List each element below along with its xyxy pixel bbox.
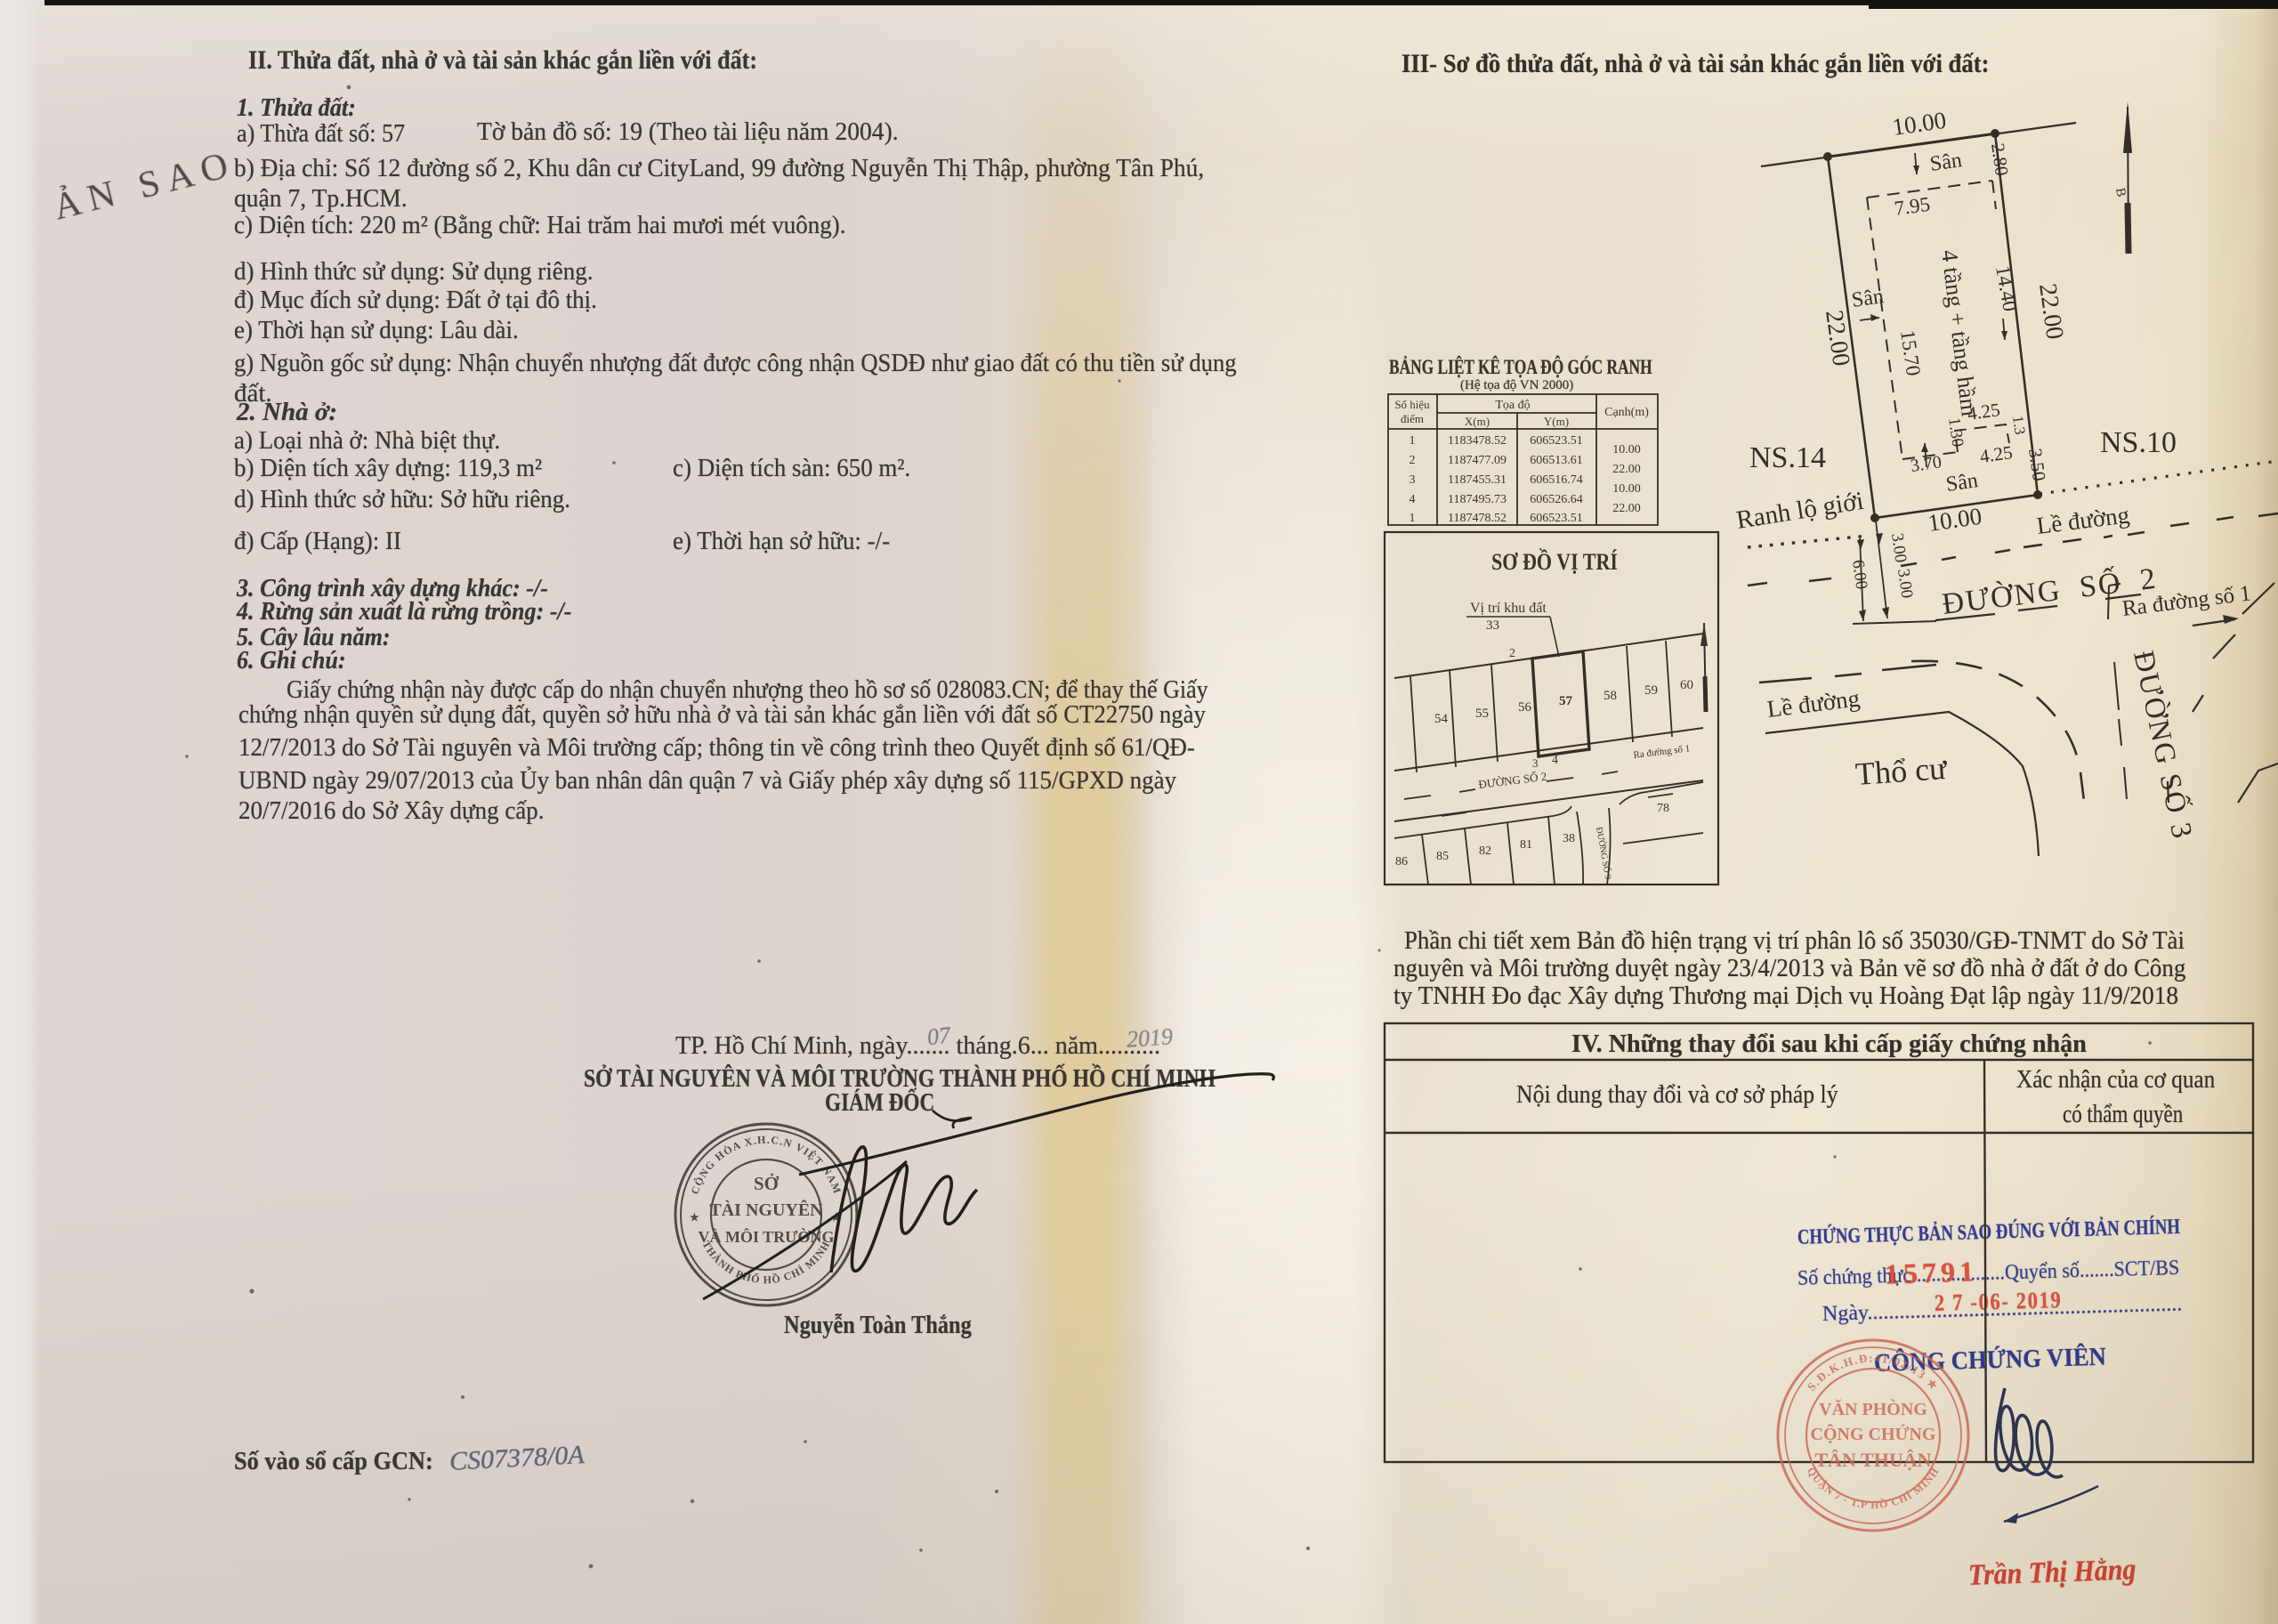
svg-text:CỘNG CHỨNG: CỘNG CHỨNG — [1811, 1423, 1936, 1444]
svg-text:58: 58 — [1603, 689, 1617, 703]
svg-text:1187495.73: 1187495.73 — [1448, 493, 1507, 506]
svg-text:59: 59 — [1644, 683, 1658, 698]
svg-text:NS.10: NS.10 — [2100, 426, 2177, 459]
svg-text:Thổ cư: Thổ cư — [1854, 750, 1950, 792]
svg-text:Sân: Sân — [1850, 285, 1885, 312]
svg-text:1187455.31: 1187455.31 — [1448, 473, 1507, 487]
svg-text:QUẬN 7 - T.P HỒ CHÍ MINH: QUẬN 7 - T.P HỒ CHÍ MINH — [1805, 1465, 1942, 1511]
svg-text:2: 2 — [1410, 454, 1416, 467]
svg-text:Tọa độ: Tọa độ — [1495, 399, 1530, 412]
svg-text:22.00: 22.00 — [2033, 282, 2068, 342]
svg-text:ĐƯỜNG SỐ 9: ĐƯỜNG SỐ 9 — [1594, 826, 1614, 880]
svg-text:4: 4 — [1410, 493, 1416, 506]
svg-text:1.30: 1.30 — [1944, 416, 1967, 448]
svg-text:NS.14: NS.14 — [1749, 441, 1826, 474]
svg-text:điểm: điểm — [1401, 412, 1424, 425]
svg-text:78: 78 — [1657, 802, 1669, 815]
svg-text:SƠ ĐỒ VỊ TRÍ: SƠ ĐỒ VỊ TRÍ — [1491, 549, 1618, 575]
svg-text:606523.51: 606523.51 — [1530, 434, 1583, 448]
svg-text:4.25: 4.25 — [1966, 399, 2001, 424]
svg-text:1: 1 — [1410, 512, 1416, 525]
svg-text:60: 60 — [1680, 678, 1693, 692]
svg-text:2: 2 — [1509, 647, 1515, 660]
svg-text:Lề đường: Lề đường — [2035, 501, 2131, 539]
svg-text:54: 54 — [1434, 712, 1449, 726]
svg-text:606526.64: 606526.64 — [1530, 493, 1583, 506]
svg-text:606516.74: 606516.74 — [1530, 473, 1583, 487]
svg-text:10.00: 10.00 — [1891, 107, 1948, 141]
svg-text:81: 81 — [1520, 838, 1532, 852]
svg-text:Ranh lộ giới: Ranh lộ giới — [1734, 487, 1865, 535]
svg-text:Vị trí khu đất: Vị trí khu đất — [1470, 601, 1547, 616]
svg-text:SỞ: SỞ — [754, 1173, 780, 1194]
svg-text:3.50: 3.50 — [2024, 447, 2050, 482]
svg-text:VĂN PHÒNG: VĂN PHÒNG — [1819, 1398, 1927, 1419]
svg-text:ĐƯỜNG SỐ 3: ĐƯỜNG SỐ 3 — [2127, 648, 2201, 844]
svg-text:10.00: 10.00 — [1612, 443, 1641, 456]
svg-text:2.80: 2.80 — [1987, 141, 2013, 177]
svg-text:22.00: 22.00 — [1612, 463, 1641, 476]
svg-text:85: 85 — [1436, 850, 1449, 863]
svg-text:Y(m): Y(m) — [1544, 415, 1569, 428]
svg-text:55: 55 — [1475, 707, 1489, 721]
svg-text:1187477.09: 1187477.09 — [1448, 454, 1507, 467]
svg-text:15.70: 15.70 — [1896, 328, 1925, 377]
svg-text:TÂN THUẬN: TÂN THUẬN — [1814, 1449, 1931, 1471]
svg-text:4.25: 4.25 — [1978, 441, 2014, 467]
svg-text:1: 1 — [1410, 434, 1416, 448]
svg-text:1187478.52: 1187478.52 — [1448, 512, 1507, 525]
svg-text:S.Đ.K.H.Đ:41/02/13 ★: S.Đ.K.H.Đ:41/02/13 ★ — [1805, 1351, 1942, 1393]
svg-text:3.00: 3.00 — [1894, 568, 1916, 600]
svg-text:6.00: 6.00 — [1848, 559, 1870, 591]
svg-text:4: 4 — [1552, 754, 1558, 767]
svg-text:22.00: 22.00 — [1612, 502, 1641, 515]
svg-text:TÀI NGUYÊN: TÀI NGUYÊN — [709, 1199, 823, 1220]
svg-text:56: 56 — [1518, 700, 1532, 715]
svg-text:606523.51: 606523.51 — [1530, 512, 1583, 525]
svg-text:7.95: 7.95 — [1893, 193, 1931, 220]
svg-text:Lề đường: Lề đường — [1765, 684, 1862, 723]
svg-text:86: 86 — [1395, 855, 1408, 869]
svg-text:3: 3 — [1532, 756, 1539, 770]
svg-text:14.40: 14.40 — [1991, 264, 2022, 313]
svg-text:X(m): X(m) — [1465, 415, 1490, 428]
svg-text:★: ★ — [690, 1211, 699, 1224]
svg-text:B: B — [2112, 187, 2128, 198]
svg-text:Số hiệu: Số hiệu — [1394, 398, 1430, 411]
svg-text:Sân: Sân — [1928, 149, 1963, 176]
svg-text:ĐƯỜNG SỐ 2: ĐƯỜNG SỐ 2 — [1478, 770, 1548, 791]
svg-text:10.00: 10.00 — [1612, 482, 1641, 496]
svg-text:38: 38 — [1563, 832, 1575, 845]
svg-text:3.00: 3.00 — [1887, 532, 1910, 564]
svg-text:1183478.52: 1183478.52 — [1448, 434, 1507, 448]
svg-text:606513.61: 606513.61 — [1530, 454, 1583, 467]
svg-text:82: 82 — [1479, 844, 1491, 858]
svg-text:1.3: 1.3 — [2009, 415, 2029, 436]
svg-text:57: 57 — [1559, 694, 1573, 708]
svg-text:Sân: Sân — [1944, 469, 1979, 497]
svg-text:Cạnh(m): Cạnh(m) — [1604, 406, 1649, 419]
svg-text:33: 33 — [1486, 618, 1499, 633]
svg-text:3: 3 — [1410, 473, 1416, 487]
svg-text:4 tầng + tầng hầm: 4 tầng + tầng hầm — [1936, 248, 1983, 417]
svg-text:Ra đường số 1: Ra đường số 1 — [1633, 743, 1691, 761]
svg-text:10.00: 10.00 — [1927, 503, 1983, 537]
